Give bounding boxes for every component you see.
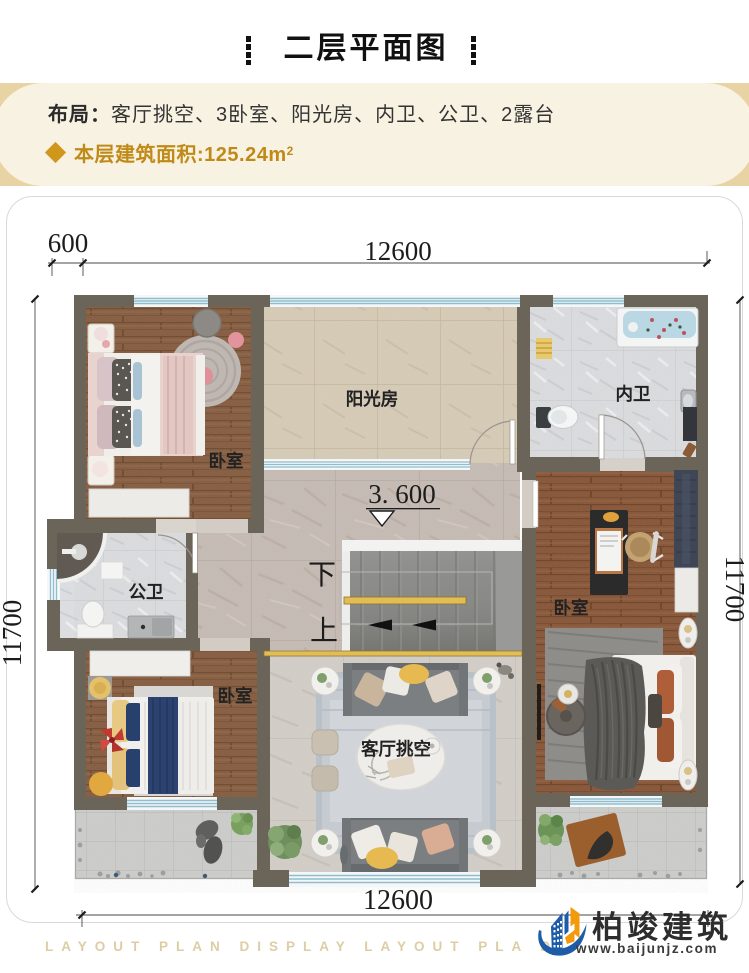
svg-text:11700: 11700	[720, 556, 749, 623]
svg-text:LAYOUT PLAN DISPLAY LAYOUT PLA: LAYOUT PLAN DISPLAY LAYOUT PLA D	[45, 939, 558, 954]
svg-text:内卫: 内卫	[616, 384, 651, 404]
svg-text:客厅挑空: 客厅挑空	[360, 739, 431, 759]
svg-text:上: 上	[310, 615, 338, 646]
svg-text:12600: 12600	[363, 885, 433, 916]
svg-text:12600: 12600	[364, 236, 432, 266]
svg-text:下: 下	[308, 559, 336, 590]
svg-text:600: 600	[48, 228, 89, 258]
svg-text:阳光房: 阳光房	[346, 389, 399, 409]
svg-text:卧室: 卧室	[218, 686, 253, 706]
svg-text:11700: 11700	[0, 600, 27, 667]
svg-text:二层平面图: 二层平面图	[284, 32, 449, 65]
svg-text:布局：客厅挑空、3卧室、阳光房、内卫、公卫、2露台: 布局：客厅挑空、3卧室、阳光房、内卫、公卫、2露台	[48, 102, 555, 126]
svg-text:公卫: 公卫	[129, 582, 164, 602]
svg-text:柏竣建筑: 柏竣建筑	[592, 910, 732, 945]
svg-text:卧室: 卧室	[209, 451, 244, 471]
svg-text:本层建筑面积:125.24m2: 本层建筑面积:125.24m2	[74, 142, 294, 166]
svg-text:卧室: 卧室	[554, 598, 589, 618]
svg-text:3. 600: 3. 600	[368, 479, 436, 509]
svg-text:www.baijunjz.com: www.baijunjz.com	[575, 941, 718, 956]
